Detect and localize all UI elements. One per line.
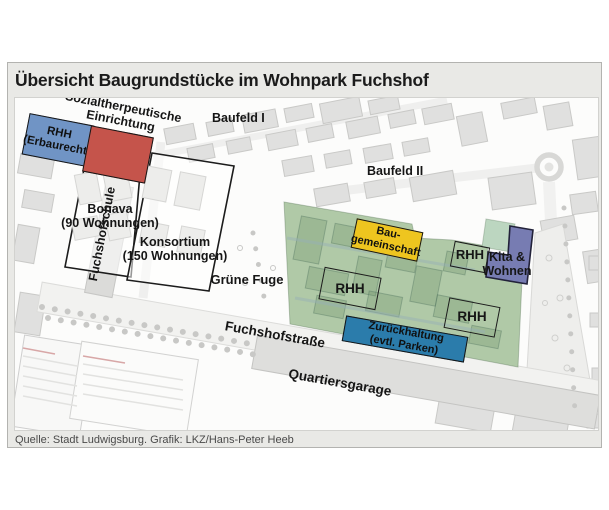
bonava-label-2: (90 Wohnungen) [50, 216, 170, 230]
konsortium-label-1: Konsortium [110, 235, 240, 249]
label-kita-wohnen: Kita & Wohnen [469, 250, 545, 278]
kita-wohnen-label-2: Wohnen [469, 264, 545, 278]
infographic: Übersicht Baugrundstücke im Wohnpark Fuc… [0, 0, 609, 510]
infographic-title: Übersicht Baugrundstücke im Wohnpark Fuc… [15, 70, 429, 91]
label-gruene-fuge: Grüne Fuge [202, 273, 292, 288]
bonava-label-1: Bonava [50, 202, 170, 216]
label-rhh-2: RHH [446, 309, 498, 324]
site-map: RHH (Erbaurecht) Sozialtherpeutische Ein… [14, 97, 599, 431]
kita-wohnen-label-1: Kita & [469, 250, 545, 264]
label-baufeld-1: Baufeld I [212, 111, 265, 125]
source-credit: Quelle: Stadt Ludwigsburg. Grafik: LKZ/H… [15, 434, 294, 446]
infographic-card: Übersicht Baugrundstücke im Wohnpark Fuc… [7, 62, 602, 448]
label-bonava: Bonava (90 Wohnungen) [50, 202, 170, 230]
konsortium-label-2: (150 Wohnungen) [110, 249, 240, 263]
label-konsortium: Konsortium (150 Wohnungen) [110, 235, 240, 263]
label-baufeld-2: Baufeld II [367, 164, 423, 178]
roundabout [537, 155, 561, 179]
label-rhh-1: RHH [321, 281, 379, 296]
plan-documents [15, 335, 198, 430]
